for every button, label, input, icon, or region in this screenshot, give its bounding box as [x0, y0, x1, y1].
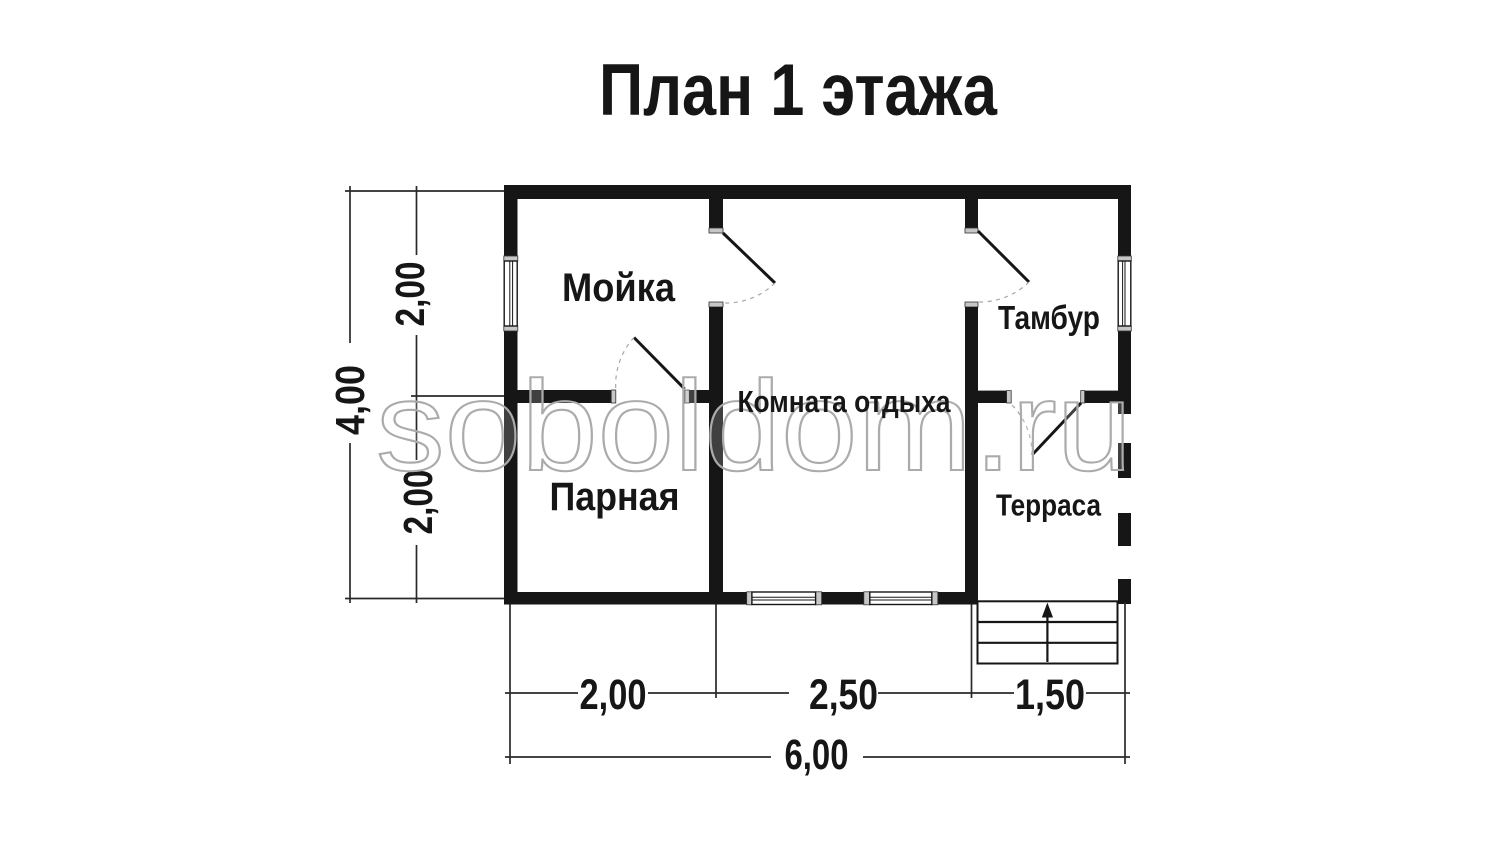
svg-text:6,00: 6,00 — [785, 731, 849, 779]
svg-text:2,00: 2,00 — [387, 262, 433, 327]
svg-text:.ru: .ru — [974, 355, 1132, 498]
svg-text:4,00: 4,00 — [327, 365, 373, 435]
svg-text:2,00: 2,00 — [580, 671, 647, 719]
svg-text:Мойка: Мойка — [562, 266, 676, 310]
svg-text:2,50: 2,50 — [809, 671, 878, 719]
svg-text:План 1 этажа: План 1 этажа — [599, 50, 998, 131]
svg-text:Терраса: Терраса — [996, 488, 1102, 523]
svg-text:Парная: Парная — [550, 475, 680, 519]
svg-text:Тамбур: Тамбур — [998, 299, 1100, 336]
svg-text:Комната отдыха: Комната отдыха — [738, 384, 952, 419]
svg-text:1,50: 1,50 — [1015, 671, 1085, 719]
